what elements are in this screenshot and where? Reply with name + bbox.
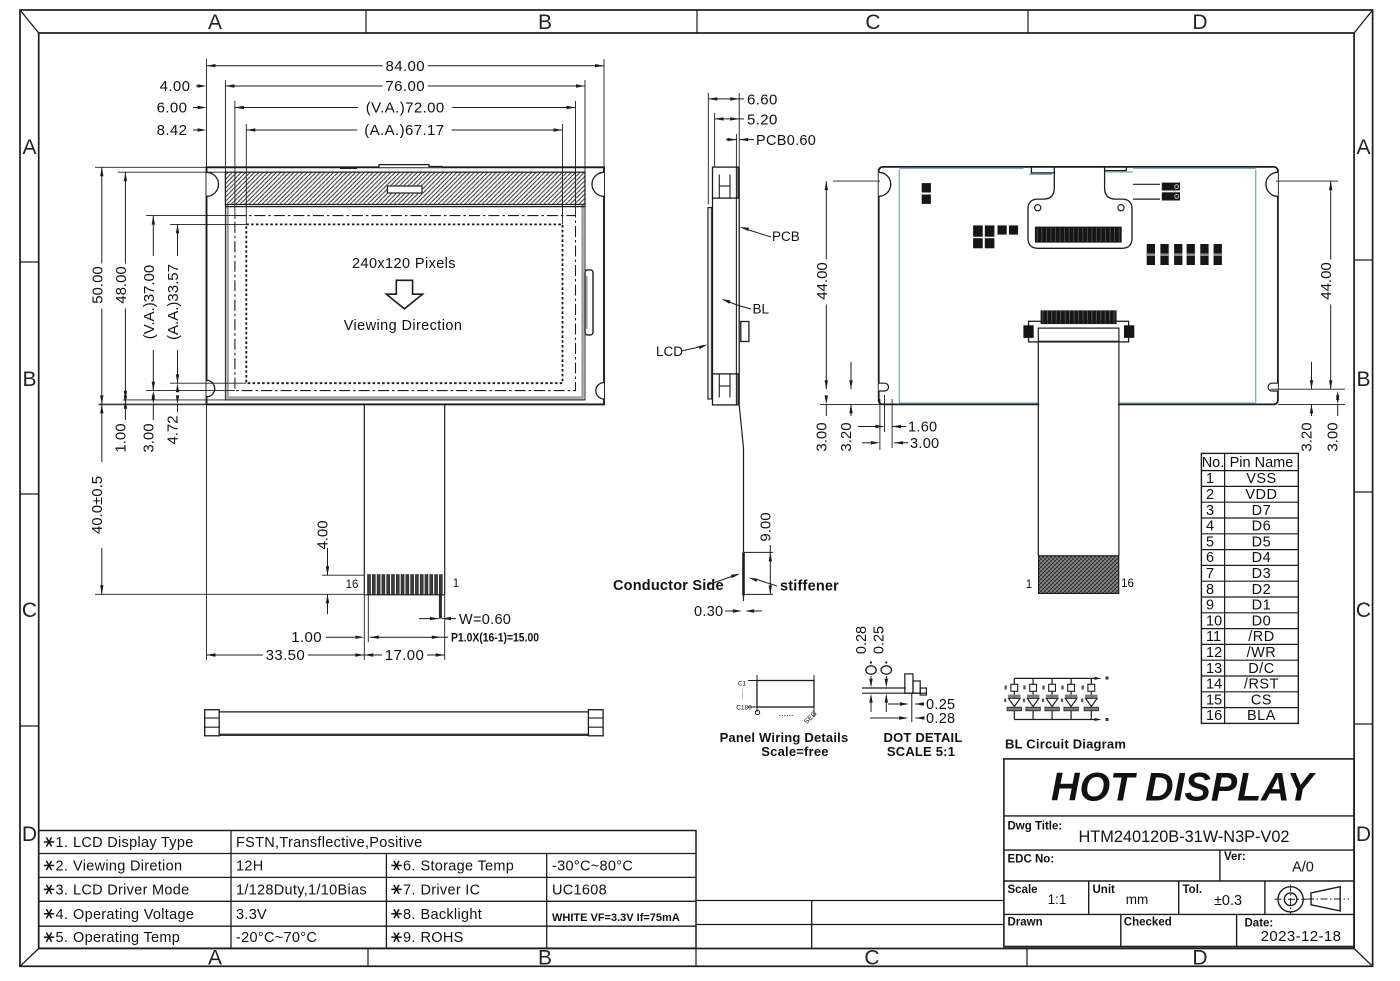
svg-text:1.00: 1.00	[112, 423, 129, 452]
svg-text:BL Circuit Diagram: BL Circuit Diagram	[1005, 737, 1126, 752]
svg-text:6.60: 6.60	[747, 92, 778, 109]
svg-text:C180: C180	[736, 705, 752, 712]
svg-text:8.42: 8.42	[157, 122, 188, 139]
svg-text:48.00: 48.00	[113, 266, 130, 304]
svg-text:A: A	[208, 11, 222, 34]
svg-text:Checked: Checked	[1124, 917, 1172, 929]
svg-text:8.: 8.	[403, 907, 416, 923]
svg-text:B: B	[538, 11, 552, 34]
svg-text:0.28: 0.28	[926, 711, 955, 727]
svg-text:5.20: 5.20	[747, 112, 778, 129]
svg-text:VDD: VDD	[1245, 487, 1277, 503]
svg-text:17.00: 17.00	[385, 647, 425, 664]
svg-text:2.: 2.	[56, 858, 69, 874]
svg-text:1: 1	[1026, 579, 1032, 591]
svg-text:Unit: Unit	[1093, 884, 1116, 896]
svg-text:4: 4	[1206, 519, 1214, 535]
svg-text:C: C	[864, 947, 879, 970]
svg-text:1.00: 1.00	[291, 629, 322, 646]
svg-text:76.00: 76.00	[385, 78, 425, 95]
svg-text:A/0: A/0	[1292, 860, 1314, 876]
svg-text:D/C: D/C	[1248, 661, 1274, 677]
svg-text:Viewing Diretion: Viewing Diretion	[73, 858, 182, 874]
svg-text:Viewing Direction: Viewing Direction	[344, 318, 463, 334]
svg-text:WHITE VF=3.3V If=75mA: WHITE VF=3.3V If=75mA	[552, 912, 680, 924]
svg-text:Operating Temp: Operating Temp	[73, 930, 180, 946]
svg-text:A: A	[1356, 136, 1370, 159]
svg-text:D6: D6	[1252, 519, 1272, 535]
svg-text:1/128Duty,1/10Bias: 1/128Duty,1/10Bias	[236, 882, 367, 898]
svg-text:6.: 6.	[403, 858, 416, 874]
svg-text:1.: 1.	[56, 835, 69, 851]
svg-text:/RST: /RST	[1244, 677, 1279, 693]
svg-text:D7: D7	[1252, 503, 1272, 519]
svg-text:Operating Voltage: Operating Voltage	[73, 907, 194, 923]
svg-text:0.30: 0.30	[694, 604, 723, 620]
svg-text:5.: 5.	[56, 930, 69, 946]
svg-text:9.: 9.	[403, 930, 416, 946]
svg-text:Conductor Side: Conductor Side	[613, 578, 724, 594]
svg-text:10: 10	[1206, 613, 1222, 629]
svg-text:UC1608: UC1608	[552, 882, 607, 898]
svg-text:C: C	[865, 11, 880, 34]
svg-text:9.00: 9.00	[757, 512, 774, 541]
svg-text:D4: D4	[1252, 550, 1272, 566]
svg-text:LCD Display Type: LCD Display Type	[73, 835, 194, 851]
svg-text:4.00: 4.00	[315, 520, 332, 549]
svg-text:Pin Name: Pin Name	[1230, 455, 1294, 471]
svg-text:Tol.: Tol.	[1183, 884, 1203, 896]
svg-text:Scale: Scale	[1008, 884, 1038, 896]
svg-text:(V.A.)72.00: (V.A.)72.00	[366, 100, 445, 117]
svg-text:B: B	[22, 368, 36, 391]
svg-text:C1: C1	[738, 681, 747, 688]
svg-text:16: 16	[1206, 708, 1222, 724]
svg-text:B: B	[538, 947, 552, 970]
svg-text:-20°C~70°C: -20°C~70°C	[236, 930, 317, 946]
svg-text:.....: .....	[738, 689, 745, 699]
svg-text:B: B	[1356, 368, 1370, 391]
svg-text:8: 8	[1206, 582, 1214, 598]
svg-text:stiffener: stiffener	[780, 579, 839, 595]
svg-text:C: C	[22, 599, 37, 622]
svg-text:W=0.60: W=0.60	[459, 612, 511, 628]
svg-text:D: D	[1192, 11, 1207, 34]
svg-text:BLA: BLA	[1247, 708, 1276, 724]
svg-text:15: 15	[1206, 692, 1222, 708]
svg-text:D: D	[22, 823, 37, 846]
svg-text:LCD: LCD	[656, 344, 683, 359]
svg-text:1:1: 1:1	[1048, 892, 1067, 907]
svg-text:3.20: 3.20	[838, 422, 855, 451]
svg-text:No.: No.	[1202, 455, 1225, 471]
svg-text:D0: D0	[1252, 613, 1272, 629]
svg-text:Dwg Title:: Dwg Title:	[1008, 821, 1063, 833]
svg-text:3.: 3.	[56, 882, 69, 898]
svg-text:D5: D5	[1252, 534, 1272, 550]
svg-text:ROHS: ROHS	[421, 930, 464, 946]
svg-text:±0.3: ±0.3	[1214, 893, 1242, 909]
svg-text:Scale=free: Scale=free	[761, 744, 828, 759]
svg-text:3: 3	[1206, 503, 1214, 519]
svg-text:D3: D3	[1252, 566, 1272, 582]
svg-text:VSS: VSS	[1246, 471, 1277, 487]
svg-text:3.00: 3.00	[910, 436, 939, 452]
svg-text:A: A	[22, 136, 36, 159]
svg-text:Drawn: Drawn	[1008, 917, 1043, 929]
svg-text:7.: 7.	[403, 882, 416, 898]
svg-text:(V.A.)37.00: (V.A.)37.00	[141, 265, 158, 340]
svg-text:1: 1	[1206, 471, 1214, 487]
svg-text:FSTN,Transflective,Positive: FSTN,Transflective,Positive	[236, 835, 422, 851]
svg-text:3.00: 3.00	[140, 423, 157, 452]
svg-text:(A.A.)33.57: (A.A.)33.57	[165, 264, 182, 340]
svg-text:84.00: 84.00	[385, 58, 425, 75]
svg-text:P1.0X(16-1)=15.00: P1.0X(16-1)=15.00	[451, 631, 539, 645]
svg-text:16: 16	[1121, 578, 1134, 590]
svg-text:3.3V: 3.3V	[236, 907, 267, 923]
svg-text:4.72: 4.72	[165, 415, 182, 444]
svg-text:6: 6	[1206, 550, 1214, 566]
svg-text:CS: CS	[1251, 692, 1272, 708]
svg-text:5: 5	[1206, 534, 1214, 550]
svg-text:Storage Temp: Storage Temp	[421, 858, 515, 874]
svg-text:14: 14	[1206, 677, 1222, 693]
svg-text:Backlight: Backlight	[421, 907, 483, 923]
svg-text:44.00: 44.00	[1318, 262, 1335, 300]
svg-text:D1: D1	[1252, 598, 1272, 614]
svg-text:50.00: 50.00	[89, 266, 106, 304]
svg-text:(A.A.)67.17: (A.A.)67.17	[364, 122, 444, 139]
svg-text:HTM240120B-31W-N3P-V02: HTM240120B-31W-N3P-V02	[1079, 827, 1290, 846]
svg-text:0.25: 0.25	[872, 626, 888, 654]
svg-text:PCB0.60: PCB0.60	[756, 133, 816, 149]
svg-text:......: ......	[778, 708, 793, 718]
svg-text:Driver IC: Driver IC	[421, 882, 481, 898]
svg-text:HOT DISPLAY: HOT DISPLAY	[1051, 766, 1316, 810]
svg-text:3.00: 3.00	[813, 422, 830, 451]
svg-text:11: 11	[1206, 629, 1221, 645]
svg-text:LCD Driver Mode: LCD Driver Mode	[73, 882, 190, 898]
svg-text:C: C	[1356, 599, 1371, 622]
svg-text:240x120 Pixels: 240x120 Pixels	[352, 256, 456, 272]
svg-text:SCALE 5:1: SCALE 5:1	[887, 744, 955, 759]
svg-text:mm: mm	[1126, 892, 1149, 907]
svg-text:0.28: 0.28	[854, 626, 870, 654]
svg-text:2: 2	[1206, 487, 1214, 503]
svg-text:-30°C~80°C: -30°C~80°C	[552, 858, 633, 874]
svg-text:Panel Wiring Details: Panel Wiring Details	[720, 730, 849, 745]
svg-text:7: 7	[1206, 566, 1214, 582]
svg-text:12: 12	[1206, 645, 1222, 661]
svg-text:9: 9	[1206, 598, 1214, 614]
svg-text:BL: BL	[753, 302, 770, 317]
svg-text:40.0±0.5: 40.0±0.5	[89, 476, 106, 534]
svg-text:2023-12-18: 2023-12-18	[1261, 928, 1342, 945]
svg-text:1.60: 1.60	[908, 420, 937, 436]
svg-text:6.00: 6.00	[157, 100, 188, 117]
svg-text:PCB: PCB	[772, 229, 800, 244]
svg-text:Ver:: Ver:	[1224, 851, 1246, 863]
svg-text:3.20: 3.20	[1299, 422, 1316, 451]
svg-text:44.00: 44.00	[814, 262, 831, 300]
svg-text:13: 13	[1206, 661, 1222, 677]
svg-text:A: A	[208, 947, 222, 970]
svg-text:D2: D2	[1252, 582, 1272, 598]
svg-text:12H: 12H	[236, 858, 264, 874]
svg-text:D: D	[1192, 947, 1207, 970]
svg-text:4.: 4.	[56, 907, 69, 923]
svg-text:/WR: /WR	[1247, 645, 1277, 661]
svg-text:1: 1	[453, 578, 459, 590]
svg-text:33.50: 33.50	[266, 647, 306, 664]
svg-text:D: D	[1356, 823, 1371, 846]
svg-text:EDC No:: EDC No:	[1008, 854, 1055, 866]
svg-text:3.00: 3.00	[1325, 422, 1342, 451]
svg-text:4.00: 4.00	[160, 78, 191, 95]
svg-text:16: 16	[346, 579, 359, 591]
svg-text:DOT DETAIL: DOT DETAIL	[883, 730, 962, 745]
svg-text:/RD: /RD	[1248, 629, 1274, 645]
